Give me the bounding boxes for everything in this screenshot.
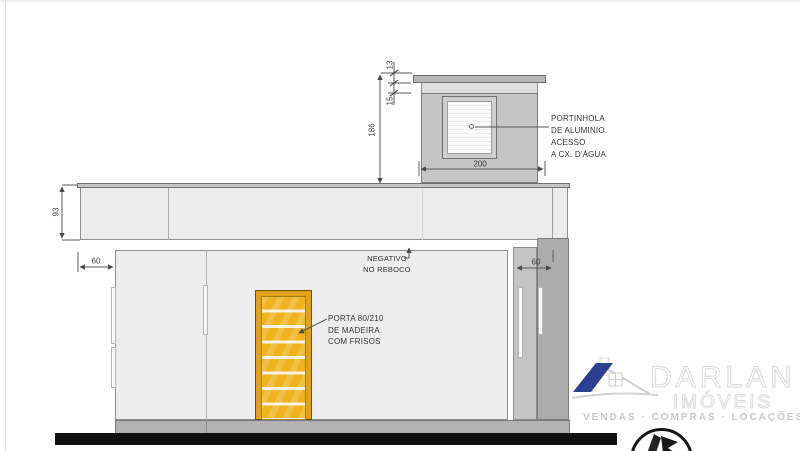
parapet-joint xyxy=(422,188,423,240)
pilaster xyxy=(513,247,537,420)
drawing-title: FACHADA DOS FUNDOS - NORTE xyxy=(74,446,472,451)
render-groove xyxy=(538,287,543,335)
dim-overhang-left: 60 xyxy=(92,257,101,266)
page-border-line xyxy=(5,0,6,451)
water-tank-upper-band xyxy=(421,83,538,93)
label-negativo: NEGATIVO NO REBOCO xyxy=(363,253,411,275)
parapet-joint xyxy=(168,188,169,240)
label-portinhola: PORTINHOLA DE ALUMINIO. ACESSO A CX. D'Á… xyxy=(551,113,607,161)
brand-tagline: VENDAS · COMPRAS · LOCAÇÕES xyxy=(583,412,797,423)
door-friso-panels xyxy=(261,296,306,420)
render-groove xyxy=(111,287,116,344)
parapet-band xyxy=(80,188,568,240)
corner-emblem-icon xyxy=(630,428,693,451)
wall-joint xyxy=(206,250,207,420)
ground-line xyxy=(55,433,617,445)
dim-overhang-right: 60 xyxy=(532,258,541,267)
dim-tank-cap: 13 xyxy=(386,61,395,70)
parapet-joint xyxy=(552,188,553,240)
facade-drawing-page: 13 15 186 200 93 60 60 PORTINHOLA DE ALU… xyxy=(0,0,800,451)
base-plinth xyxy=(115,420,570,434)
render-groove xyxy=(203,285,208,335)
page-edge-top xyxy=(0,0,800,2)
brand-name: DARLAN xyxy=(648,361,798,395)
hatch-handle-icon xyxy=(469,124,474,129)
dim-tank-height: 186 xyxy=(368,123,377,136)
dim-tank-band: 15 xyxy=(386,97,395,106)
label-porta: PORTA 80/210 DE MADEIRA COM FRISOS xyxy=(328,313,383,348)
render-groove xyxy=(111,347,116,388)
water-tank-roof-slab xyxy=(413,75,546,83)
dim-parapet: 93 xyxy=(52,208,61,217)
render-groove xyxy=(518,287,523,358)
base-joint xyxy=(206,420,207,434)
brand-subname: IMÓVEIS xyxy=(648,392,798,414)
dim-tank-width: 200 xyxy=(473,160,486,169)
